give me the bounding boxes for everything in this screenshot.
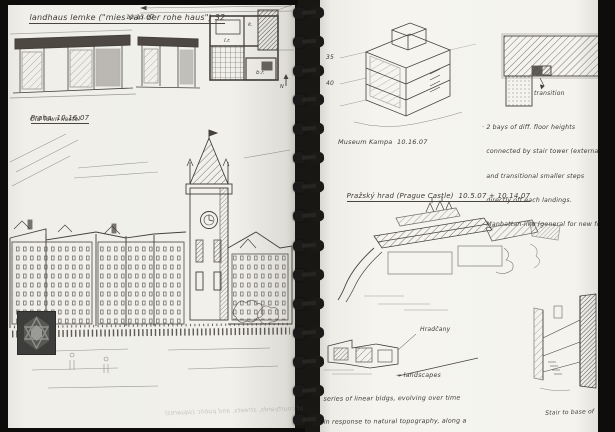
binding-coil	[293, 384, 307, 397]
plan-room-label-k: k.	[248, 22, 253, 28]
stair-note: Stair to base of castle in train.	[545, 393, 597, 432]
scan-edge-top	[0, 0, 298, 5]
spiral-binding	[293, 7, 325, 426]
bottom-note: series of linear bldgs, evolving over ti…	[323, 379, 509, 432]
rosette-star-icon	[18, 312, 55, 354]
right-page: 35 40 Museum Kampa 10.16.07 transition ·…	[320, 0, 598, 432]
bottom-note-lead: → landscapes	[396, 372, 441, 379]
praha-sublabel: Old Town kostel	[30, 116, 80, 123]
binding-coil	[293, 181, 307, 194]
binding-coil	[293, 7, 307, 20]
section-detail-sketch	[488, 32, 613, 110]
north-arrow-icon: N	[280, 74, 289, 90]
binding-coil	[293, 268, 307, 281]
binding-coil	[293, 355, 307, 368]
scan-edge-right	[598, 0, 615, 432]
binding-coil	[293, 413, 307, 426]
castle-stair-perspective-sketch	[534, 292, 598, 400]
plan-room-label-lr: l.r.	[224, 38, 231, 44]
binding-coil	[293, 152, 307, 165]
binding-coil	[293, 65, 307, 78]
kampa-label: Museum Kampa 10.16.07	[338, 139, 428, 147]
hradcany-label: Hradčany	[420, 326, 450, 333]
scan-edge-left	[0, 0, 8, 432]
sketchbook-scan: landhaus lemke ("mies van der rohe haus"…	[0, 0, 615, 432]
scan-edge-bottom	[0, 428, 305, 432]
binding-coil	[293, 239, 307, 252]
rosette-stamp	[18, 312, 55, 354]
prague-castle-axon-sketch	[334, 196, 566, 316]
binding-coil	[293, 94, 307, 107]
lemke-floorplan-sketch: l.r. k. b.r. N	[200, 2, 294, 90]
old-town-square-sketch	[8, 128, 294, 396]
binding-coil	[293, 326, 307, 339]
binding-coil	[293, 297, 307, 310]
lemke-elevation-sketch	[10, 22, 202, 104]
kampa-dim-a: 35	[326, 54, 334, 61]
left-page: landhaus lemke ("mies van der rohe haus"…	[8, 0, 295, 432]
kampa-dim-b: 40	[326, 80, 334, 87]
show-through-text: of courtyards, streets, and public (squa…	[127, 391, 306, 432]
page-title-date: 10.13.07	[126, 14, 154, 21]
binding-coil	[293, 36, 307, 49]
museum-kampa-axon-sketch	[334, 14, 484, 139]
binding-coil	[293, 123, 307, 136]
plan-room-label-br: b.r.	[256, 70, 265, 76]
transition-label: transition	[534, 90, 565, 97]
svg-text:N: N	[280, 84, 284, 90]
binding-coil	[293, 210, 307, 223]
